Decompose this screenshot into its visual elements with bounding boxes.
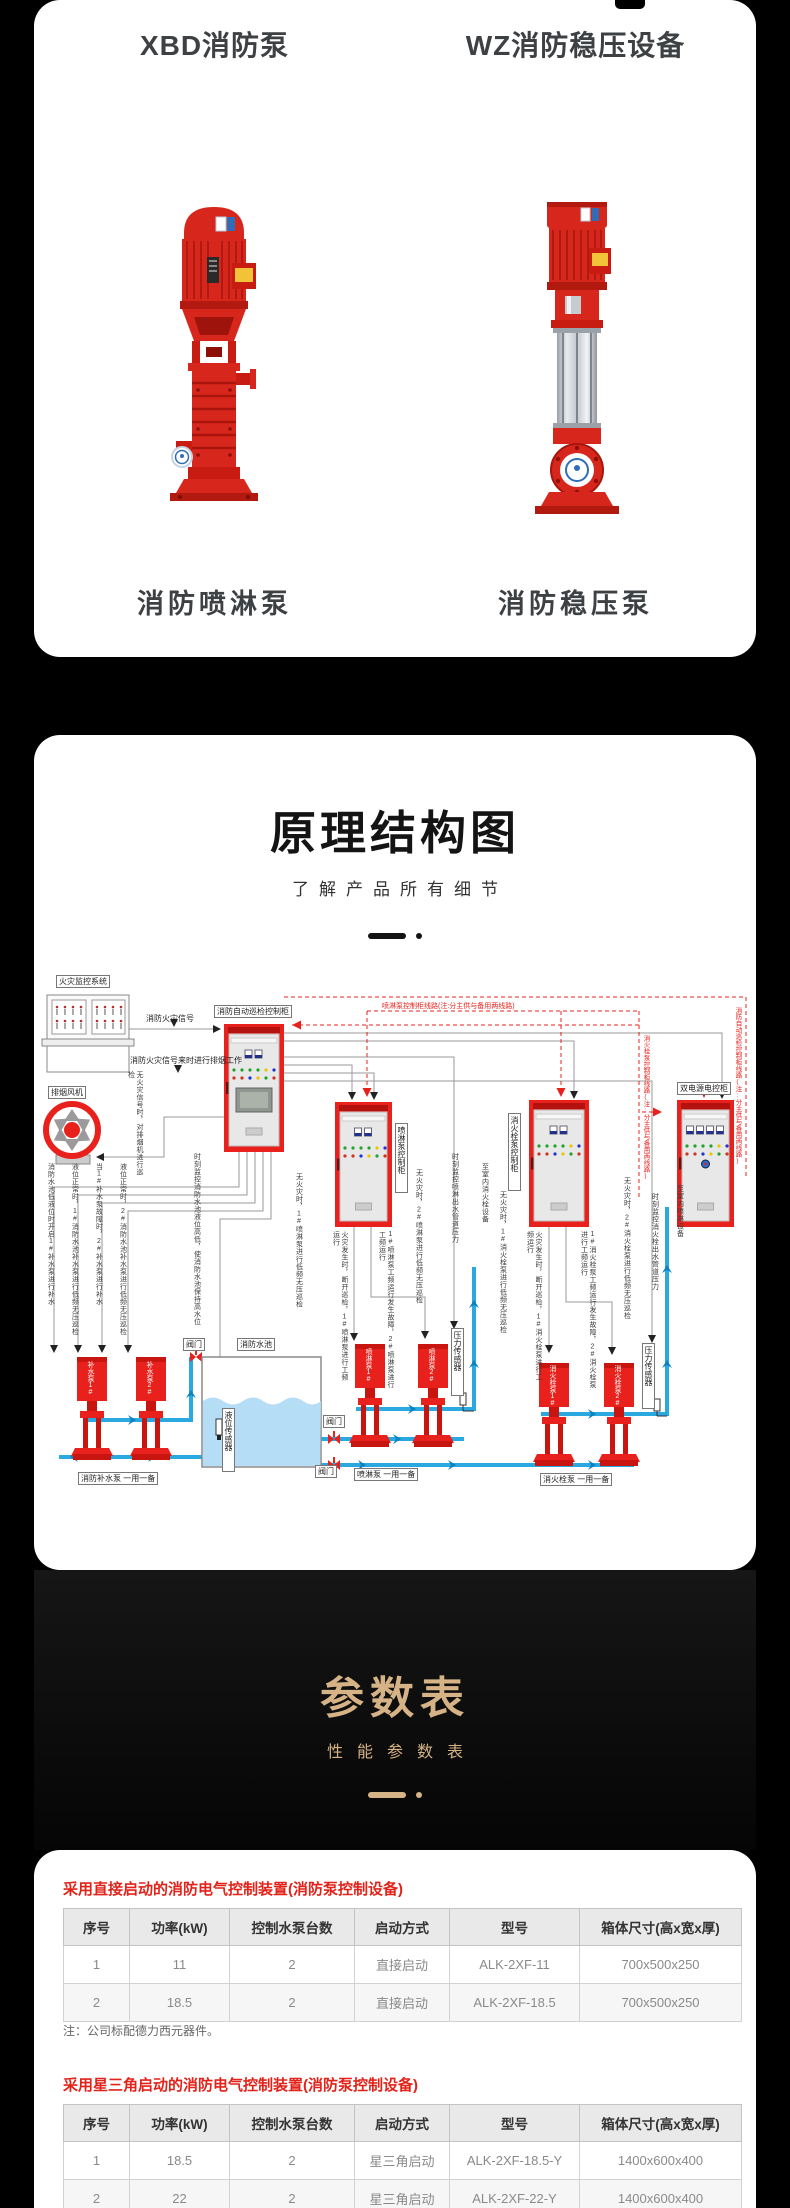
- table-header-cell: 控制水泵台数: [230, 2105, 355, 2142]
- diagram-annotation: 液位正常时，1#消防水池补水泵进行低频无压巡检: [70, 1163, 79, 1368]
- water-tank: [202, 1357, 321, 1467]
- principle-structure-diagram: 火灾监控系统 消防火灾信号 消防火灾信号来时进行排烟工作 排烟风机 消防自动巡检…: [34, 967, 756, 1504]
- hydrant-cabinet-label: 消火栓泵控制柜: [508, 1113, 521, 1191]
- valve-label-2: 阀门: [323, 1415, 345, 1428]
- product-caption-left: 消防喷淋泵: [34, 582, 395, 621]
- pressure-sensor-label-2: 压力传感器: [642, 1343, 655, 1409]
- product-caption-right: 消防稳压泵: [395, 582, 756, 621]
- pump-label-hydrant2: 消火栓泵2#: [613, 1365, 621, 1409]
- diagram-annotation: 当1#补水泵故障时，2#补水泵进行补水: [94, 1163, 103, 1348]
- table-row: 1112直接启动ALK-2XF-11700x500x250: [64, 1946, 742, 1984]
- fire-pump-image-right: [517, 200, 637, 520]
- top-notch-decoration: [615, 0, 645, 9]
- structure-title: 原理结构图: [34, 797, 756, 863]
- table-header-cell: 功率(kW): [130, 2105, 230, 2142]
- table-row: 2222星三角启动ALK-2XF-22-Y1400x600x400: [64, 2180, 742, 2208]
- diagram-annotation: 无火灾时，1#喷淋泵进行低频无压巡检: [294, 1173, 303, 1345]
- fan-annotation: 无火灾信号时，对排烟机进行巡检: [126, 1071, 143, 1183]
- tank-label: 消防水池: [237, 1338, 275, 1351]
- diagram-annotation: 无火灾时，2#喷淋泵进行低频无压巡检: [414, 1169, 423, 1341]
- table-cell: ALK-2XF-11: [450, 1946, 580, 1984]
- table-cell: 700x500x250: [580, 1946, 742, 1984]
- table-cell: 2: [64, 1984, 130, 2022]
- table-cell: 直接启动: [355, 1946, 450, 1984]
- table-header-cell: 启动方式: [355, 1909, 450, 1946]
- diagram-annotation: 1#消火栓泵工频运行发生故障，2#消火栓泵进行工频运行: [578, 1231, 596, 1391]
- params-heading-band: 参数表 性能参数表: [34, 1570, 756, 1850]
- table-header-cell: 箱体尺寸(高x宽x厚): [580, 1909, 742, 1946]
- pair-label-penlin: 喷淋泵 一用一备: [354, 1468, 418, 1481]
- table-row: 118.52星三角启动ALK-2XF-18.5-Y1400x600x400: [64, 2142, 742, 2180]
- pump-label-bushui1: 补水泵1#: [86, 1361, 94, 1403]
- valve-label-3: 阀门: [315, 1465, 337, 1478]
- table-cell: 1400x600x400: [580, 2142, 742, 2180]
- table-cell: 700x500x250: [580, 1984, 742, 2022]
- table-header-cell: 箱体尺寸(高x宽x厚): [580, 2105, 742, 2142]
- diagram-annotation: 至室内喷淋设备: [675, 1185, 684, 1265]
- parameter-tables-card: 采用直接启动的消防电气控制装置(消防泵控制设备) 序号功率(kW)控制水泵台数启…: [34, 1850, 756, 2208]
- pressure-sensor-label-1: 压力传感器: [451, 1328, 464, 1396]
- table-cell: 1: [64, 2142, 130, 2180]
- product-title-left: XBD消防泵: [34, 24, 395, 64]
- fire-monitor-box: [42, 995, 134, 1072]
- table-direct-start: 序号功率(kW)控制水泵台数启动方式型号箱体尺寸(高x宽x厚)1112直接启动A…: [63, 1908, 742, 2022]
- table-cell: 1400x600x400: [580, 2180, 742, 2208]
- table-cell: 2: [230, 1984, 355, 2022]
- valve-label-1: 阀门: [183, 1338, 205, 1351]
- diagram-annotation: 时刻监控喷淋出水管道压力: [450, 1153, 459, 1271]
- table-cell: 直接启动: [355, 1984, 450, 2022]
- product-title-right: WZ消防稳压设备: [395, 24, 756, 64]
- diagram-annotation: 液位正常时，2#消防水池补水泵进行低频无压巡检: [118, 1163, 127, 1368]
- patrol-line-note: 消防自动巡检控制柜线路(注:分主供与备用两线路): [733, 1007, 741, 1179]
- pair-label-bushui: 消防补水泵 一用一备: [78, 1472, 158, 1485]
- pump-label-penlin1: 喷淋泵1#: [364, 1348, 372, 1390]
- table-title-star-delta: 采用星三角启动的消防电气控制装置(消防泵控制设备): [63, 2074, 741, 2095]
- table-note: 注：公司标配德力西元器件。: [63, 2022, 219, 2039]
- diagram-annotation: 时刻监控消火栓出水管道压力: [650, 1193, 659, 1309]
- smoke-fan-label: 排烟风机: [48, 1086, 86, 1099]
- table-cell: 2: [230, 2142, 355, 2180]
- structure-divider: [368, 933, 422, 939]
- table-cell: ALK-2XF-22-Y: [450, 2180, 580, 2208]
- diagram-annotation: 无火灾时，2#消火栓泵进行低频无压巡检: [622, 1177, 631, 1347]
- table-cell: 11: [130, 1946, 230, 1984]
- spray-cabinet-label: 喷淋泵控制柜: [395, 1123, 408, 1193]
- diagram-annotation: 无火灾时，1#消火栓泵进行低频无压巡检: [498, 1191, 507, 1359]
- table-header-cell: 序号: [64, 2105, 130, 2142]
- table-star-delta: 序号功率(kW)控制水泵台数启动方式型号箱体尺寸(高x宽x厚)118.52星三角…: [63, 2104, 742, 2208]
- fire-signal-label: 消防火灾信号: [146, 1013, 194, 1024]
- table-header-cell: 启动方式: [355, 2105, 450, 2142]
- table-cell: 星三角启动: [355, 2142, 450, 2180]
- diagram-annotation: 火灾发生时，断开巡检，1#消火栓泵进行工频运行: [524, 1231, 542, 1383]
- table-cell: 1: [64, 1946, 130, 1984]
- table-cell: 18.5: [130, 1984, 230, 2022]
- pump-label-penlin2: 喷淋泵2#: [427, 1348, 435, 1390]
- table-header-cell: 序号: [64, 1909, 130, 1946]
- fire-pump-image-left: [154, 205, 274, 505]
- level-sensor-label: 液位传感器: [222, 1408, 235, 1472]
- table-header-cell: 型号: [450, 1909, 580, 1946]
- spray-line-note: 喷淋泵控制柜线路(注:分主供与备用两线路): [382, 1001, 515, 1011]
- diagram-annotation: 火灾发生时，断开巡检，1#喷淋泵进行工频运行: [330, 1231, 348, 1381]
- params-divider: [368, 1792, 422, 1798]
- product-detail-page: XBD消防泵 WZ消防稳压设备: [0, 0, 790, 2208]
- hydrant-line-note: 消火栓泵控制柜线路(注:分主供与备用两线路): [641, 1035, 649, 1195]
- table-cell: ALK-2XF-18.5-Y: [450, 2142, 580, 2180]
- table-cell: 2: [230, 2180, 355, 2208]
- diagram-annotation: 消防水池低液位时开启1#补水泵进行补水: [46, 1163, 55, 1358]
- structure-diagram-card: 原理结构图 了解产品所有细节: [34, 735, 756, 1570]
- params-title: 参数表: [34, 1662, 756, 1726]
- table-cell: 星三角启动: [355, 2180, 450, 2208]
- table-cell: 18.5: [130, 2142, 230, 2180]
- diagram-annotation: 时刻监控消防水池液位高低，使消防水池保持高水位: [192, 1153, 201, 1353]
- smoke-work-label: 消防火灾信号来时进行排烟工作: [130, 1055, 242, 1066]
- fire-monitor-label: 火灾监控系统: [56, 975, 110, 988]
- dual-power-cabinet-label: 双电源电控柜: [677, 1082, 731, 1095]
- smoke-fan: [46, 1104, 98, 1164]
- diagram-annotation: 1#喷淋泵工频运行发生故障，2#喷淋泵进行工频运行: [376, 1231, 394, 1389]
- table-title-direct-start: 采用直接启动的消防电气控制装置(消防泵控制设备): [63, 1878, 741, 1899]
- table-cell: 22: [130, 2180, 230, 2208]
- auto-patrol-cabinet-label: 消防自动巡检控制柜: [214, 1005, 292, 1018]
- pair-label-hydrant: 消火栓泵 一用一备: [540, 1473, 612, 1486]
- table-cell: 2: [230, 1946, 355, 1984]
- hero-products-card: XBD消防泵 WZ消防稳压设备: [34, 0, 756, 657]
- diagram-annotation: 至室内消火栓设备: [480, 1163, 489, 1255]
- structure-subtitle: 了解产品所有细节: [34, 875, 756, 900]
- pump-label-hydrant1: 消火栓泵1#: [548, 1365, 556, 1409]
- table-cell: 2: [64, 2180, 130, 2208]
- table-header-cell: 控制水泵台数: [230, 1909, 355, 1946]
- params-subtitle: 性能参数表: [34, 1738, 756, 1762]
- table-cell: ALK-2XF-18.5: [450, 1984, 580, 2022]
- table-row: 218.52直接启动ALK-2XF-18.5700x500x250: [64, 1984, 742, 2022]
- pump-label-bushui2: 补水泵2#: [145, 1361, 153, 1403]
- table-header-cell: 功率(kW): [130, 1909, 230, 1946]
- table-header-cell: 型号: [450, 2105, 580, 2142]
